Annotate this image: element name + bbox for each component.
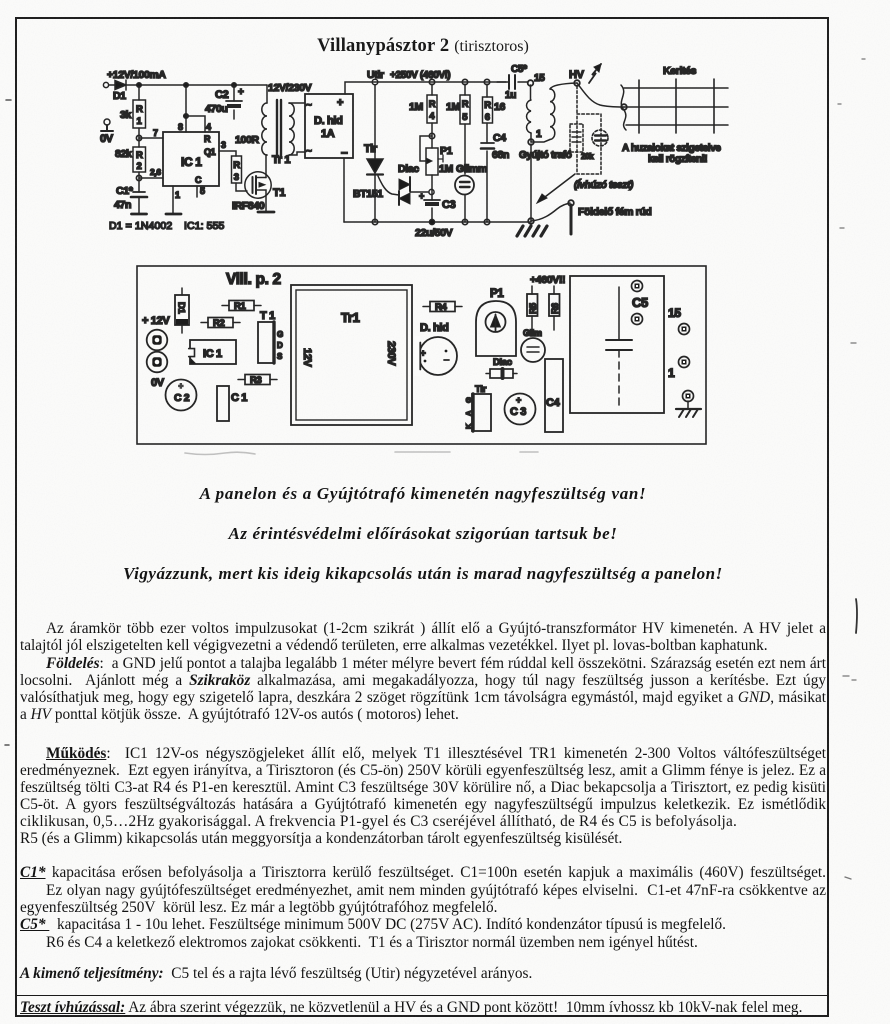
svg-text:470u: 470u: [205, 103, 228, 115]
svg-text:D: D: [277, 341, 283, 350]
svg-text:1: 1: [175, 190, 180, 200]
svg-text:3k: 3k: [120, 109, 131, 121]
svg-text:1: 1: [668, 366, 675, 380]
svg-text:Glimm: Glimm: [456, 163, 487, 175]
svg-text:C5*: C5*: [511, 64, 527, 75]
svg-text:R: R: [136, 150, 143, 161]
svg-text:Tr 1: Tr 1: [272, 154, 290, 166]
svg-text:Vill. p. 2: Vill. p. 2: [226, 271, 281, 288]
svg-text:~: ~: [306, 146, 312, 157]
svg-text:15: 15: [534, 73, 545, 84]
svg-text:Diac: Diac: [398, 163, 419, 175]
svg-text:IC1: 555: IC1: 555: [184, 220, 225, 232]
svg-text:BT151: BT151: [353, 188, 383, 200]
svg-text:C4: C4: [493, 132, 506, 144]
svg-text:D1 = 1N4002: D1 = 1N4002: [109, 220, 172, 232]
svg-text:68n: 68n: [492, 149, 509, 161]
svg-text:P1: P1: [440, 145, 453, 157]
svg-text:1: 1: [536, 129, 542, 140]
svg-text:G: G: [464, 397, 473, 403]
svg-text:R: R: [233, 160, 240, 171]
svg-text:+460V!!: +460V!!: [530, 274, 565, 286]
svg-text:6: 6: [485, 112, 490, 123]
svg-text:R: R: [204, 134, 211, 144]
svg-text:IC 1: IC 1: [181, 155, 202, 169]
svg-text:20k: 20k: [581, 152, 594, 161]
svg-text:Tir: Tir: [364, 143, 378, 155]
svg-text:C1*: C1*: [116, 185, 134, 197]
svg-text:–: –: [341, 145, 348, 159]
svg-text:1M: 1M: [446, 101, 460, 113]
svg-text:D. hid: D. hid: [420, 322, 448, 334]
svg-text:12V/230V: 12V/230V: [268, 82, 312, 94]
svg-text:Földelő fém rúd: Földelő fém rúd: [578, 206, 652, 218]
svg-text:Kerités: Kerités: [663, 65, 697, 77]
svg-text:0V: 0V: [151, 377, 165, 389]
svg-text:kell rögzíteni!: kell rögzíteni!: [648, 154, 707, 165]
svg-text:S: S: [277, 352, 283, 361]
svg-text:R: R: [136, 104, 143, 115]
svg-text:C4: C4: [546, 397, 561, 409]
svg-text:82k: 82k: [115, 148, 132, 160]
svg-text:C 1: C 1: [231, 392, 247, 404]
svg-text:Q1: Q1: [204, 147, 216, 157]
svg-text:+: +: [516, 395, 521, 405]
svg-text:R1: R1: [234, 301, 247, 312]
svg-text:1A: 1A: [321, 128, 335, 140]
svg-text:C 2: C 2: [174, 392, 190, 404]
svg-text:P1: P1: [490, 288, 504, 300]
svg-text:2: 2: [137, 161, 142, 172]
svg-text:+ 12V: + 12V: [142, 315, 170, 327]
svg-text:C3: C3: [442, 199, 456, 211]
svg-text:16: 16: [494, 101, 505, 113]
svg-text:15: 15: [668, 306, 681, 320]
svg-text:5: 5: [200, 186, 205, 196]
svg-text:+: +: [238, 87, 244, 98]
svg-text:+12V/100mA: +12V/100mA: [107, 69, 166, 81]
svg-text:R: R: [484, 100, 491, 111]
svg-text:3: 3: [221, 140, 226, 150]
svg-text:7: 7: [153, 128, 158, 138]
svg-text:+: +: [337, 97, 343, 109]
svg-text:+: +: [421, 348, 426, 358]
svg-text:47n: 47n: [114, 199, 131, 211]
svg-text:~: ~: [306, 100, 312, 111]
svg-text:(Ívhúzó teszt): (Ívhúzó teszt): [574, 178, 634, 191]
svg-text:4: 4: [206, 122, 211, 132]
svg-text:1M: 1M: [409, 101, 423, 113]
svg-text:3: 3: [234, 172, 239, 183]
svg-text:+: +: [419, 191, 424, 201]
svg-text:+250V (460Vl): +250V (460Vl): [390, 70, 450, 81]
svg-text:D1: D1: [176, 302, 187, 315]
svg-text:1: 1: [137, 116, 143, 127]
svg-text:Gyújtó trafó: Gyújtó trafó: [519, 150, 572, 161]
svg-text:G: G: [277, 330, 283, 339]
svg-text:Diac: Diac: [493, 357, 512, 368]
svg-text:100R: 100R: [235, 134, 259, 146]
svg-text:C2: C2: [215, 89, 229, 101]
svg-text:Glim: Glim: [523, 328, 542, 338]
svg-text:+: +: [179, 382, 184, 391]
svg-text:A huzalokat szigetelve: A huzalokat szigetelve: [622, 143, 721, 154]
svg-text:1u: 1u: [505, 90, 516, 101]
svg-text:R5: R5: [528, 303, 538, 314]
svg-text:8: 8: [178, 122, 183, 132]
svg-text:T 1: T 1: [260, 310, 275, 322]
svg-text:4: 4: [429, 111, 435, 122]
svg-text:R: R: [462, 99, 469, 110]
svg-text:HV: HV: [569, 69, 585, 81]
svg-text:R6: R6: [550, 303, 560, 314]
svg-text:12V: 12V: [301, 348, 313, 368]
svg-text:IRF840: IRF840: [232, 200, 265, 212]
svg-text:2,6: 2,6: [150, 167, 161, 177]
svg-text:D. hid: D. hid: [314, 115, 342, 127]
svg-text:R4: R4: [435, 302, 448, 313]
svg-text:0V: 0V: [100, 133, 114, 145]
svg-text:IC 1: IC 1: [203, 348, 222, 360]
svg-text:C 3: C 3: [510, 406, 526, 418]
svg-text:22u/50V: 22u/50V: [415, 227, 453, 239]
svg-text:C: C: [195, 175, 202, 185]
svg-text:C5: C5: [632, 295, 648, 310]
svg-text:230V: 230V: [385, 341, 397, 366]
svg-text:R3: R3: [250, 375, 262, 386]
svg-text:R2: R2: [213, 318, 225, 329]
svg-text:1M: 1M: [439, 163, 453, 175]
svg-text:T1: T1: [273, 187, 285, 199]
svg-text:Tr1: Tr1: [341, 310, 360, 325]
svg-text:D1: D1: [113, 90, 126, 102]
svg-text:R: R: [429, 99, 436, 110]
svg-text:5: 5: [462, 112, 468, 123]
